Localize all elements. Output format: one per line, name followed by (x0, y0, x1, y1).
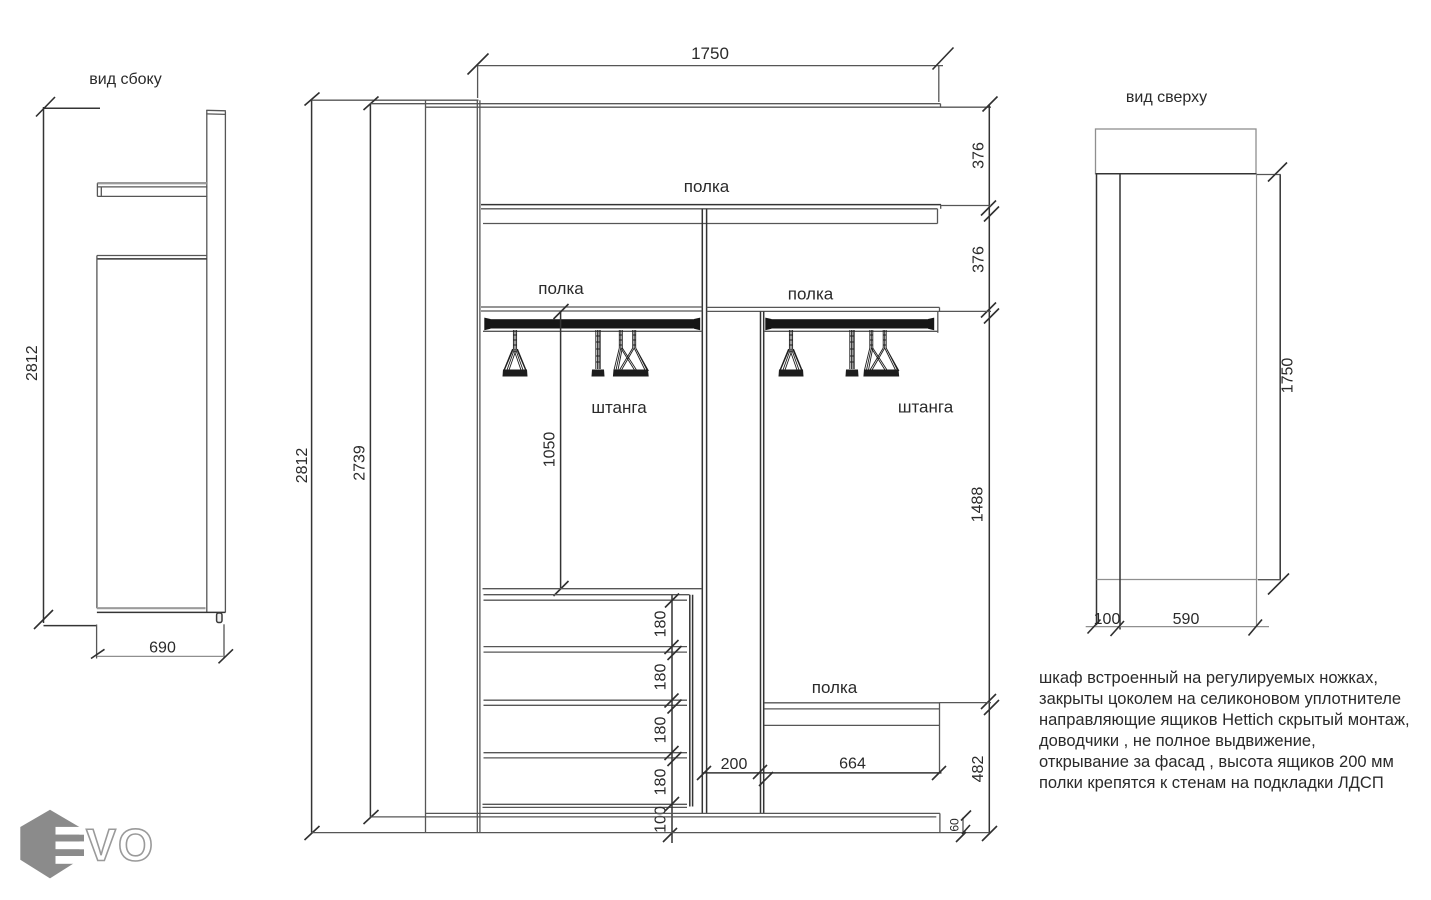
svg-text:направляющие ящиков Hettich ск: направляющие ящиков Hettich скрытый монт… (1039, 711, 1410, 729)
svg-text:шкаф встроенный на регулируемы: шкаф встроенный на регулируемых ножках, (1039, 669, 1378, 687)
svg-text:690: 690 (149, 640, 176, 657)
svg-text:60: 60 (948, 818, 962, 832)
svg-text:доводчики , не полное выдвижен: доводчики , не полное выдвижение, (1039, 732, 1316, 750)
svg-text:180: 180 (653, 717, 670, 744)
svg-text:полка: полка (812, 678, 858, 697)
svg-text:полка: полка (788, 285, 834, 304)
svg-text:590: 590 (1173, 611, 1200, 628)
svg-text:полки крепятся к стенам на под: полки крепятся к стенам на подкладки ЛДС… (1039, 774, 1384, 792)
svg-text:вид сверху: вид сверху (1126, 89, 1207, 106)
svg-text:закрыты цоколем на селиконовом: закрыты цоколем на селиконовом уплотните… (1039, 690, 1401, 708)
svg-text:180: 180 (653, 611, 670, 638)
svg-text:1050: 1050 (542, 432, 559, 468)
svg-text:VO: VO (86, 820, 155, 871)
svg-text:штанга: штанга (898, 398, 954, 417)
svg-text:полка: полка (538, 279, 584, 298)
svg-text:2812: 2812 (294, 448, 311, 484)
svg-text:664: 664 (839, 756, 866, 773)
svg-text:180: 180 (653, 769, 670, 796)
svg-text:штанга: штанга (591, 398, 647, 417)
svg-text:полка: полка (684, 177, 730, 196)
svg-text:376: 376 (971, 142, 988, 169)
svg-text:376: 376 (971, 246, 988, 273)
svg-text:100: 100 (1094, 611, 1121, 628)
svg-text:482: 482 (970, 756, 987, 783)
svg-text:100: 100 (653, 806, 670, 833)
svg-text:открывание за фасад , высота я: открывание за фасад , высота ящиков 200 … (1039, 753, 1394, 771)
svg-text:вид сбоку: вид сбоку (89, 71, 161, 88)
svg-text:180: 180 (653, 664, 670, 691)
svg-text:1750: 1750 (691, 44, 729, 63)
svg-text:2739: 2739 (351, 445, 368, 481)
svg-text:1488: 1488 (970, 487, 987, 523)
svg-text:200: 200 (721, 756, 748, 773)
svg-text:1750: 1750 (1280, 358, 1297, 394)
svg-text:2812: 2812 (24, 345, 41, 381)
